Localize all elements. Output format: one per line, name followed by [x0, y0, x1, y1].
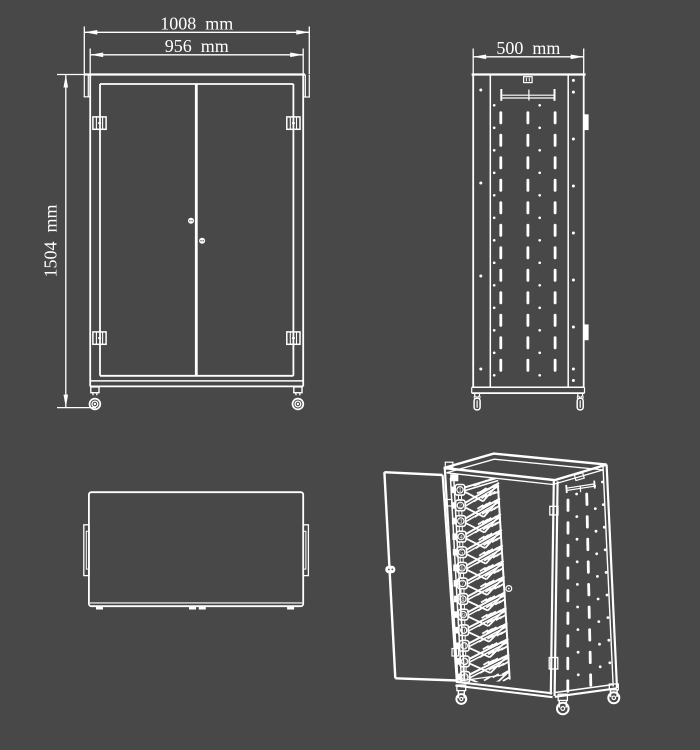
svg-text:5: 5 — [460, 549, 463, 556]
svg-text:8: 8 — [461, 596, 464, 603]
svg-text:10: 10 — [461, 627, 467, 634]
svg-text:3: 3 — [459, 518, 462, 525]
svg-text:1504 mm: 1504 mm — [41, 204, 61, 277]
svg-text:12: 12 — [462, 659, 468, 666]
svg-text:9: 9 — [462, 612, 465, 619]
svg-text:4: 4 — [460, 534, 463, 541]
svg-text:7: 7 — [461, 581, 464, 588]
svg-text:11: 11 — [461, 643, 467, 650]
svg-text:1: 1 — [458, 487, 461, 494]
svg-text:2: 2 — [459, 503, 462, 510]
svg-text:6: 6 — [461, 565, 464, 572]
svg-text:1008 mm: 1008 mm — [160, 13, 233, 33]
svg-text:500 mm: 500 mm — [496, 38, 560, 58]
svg-text:956 mm: 956 mm — [165, 36, 229, 56]
